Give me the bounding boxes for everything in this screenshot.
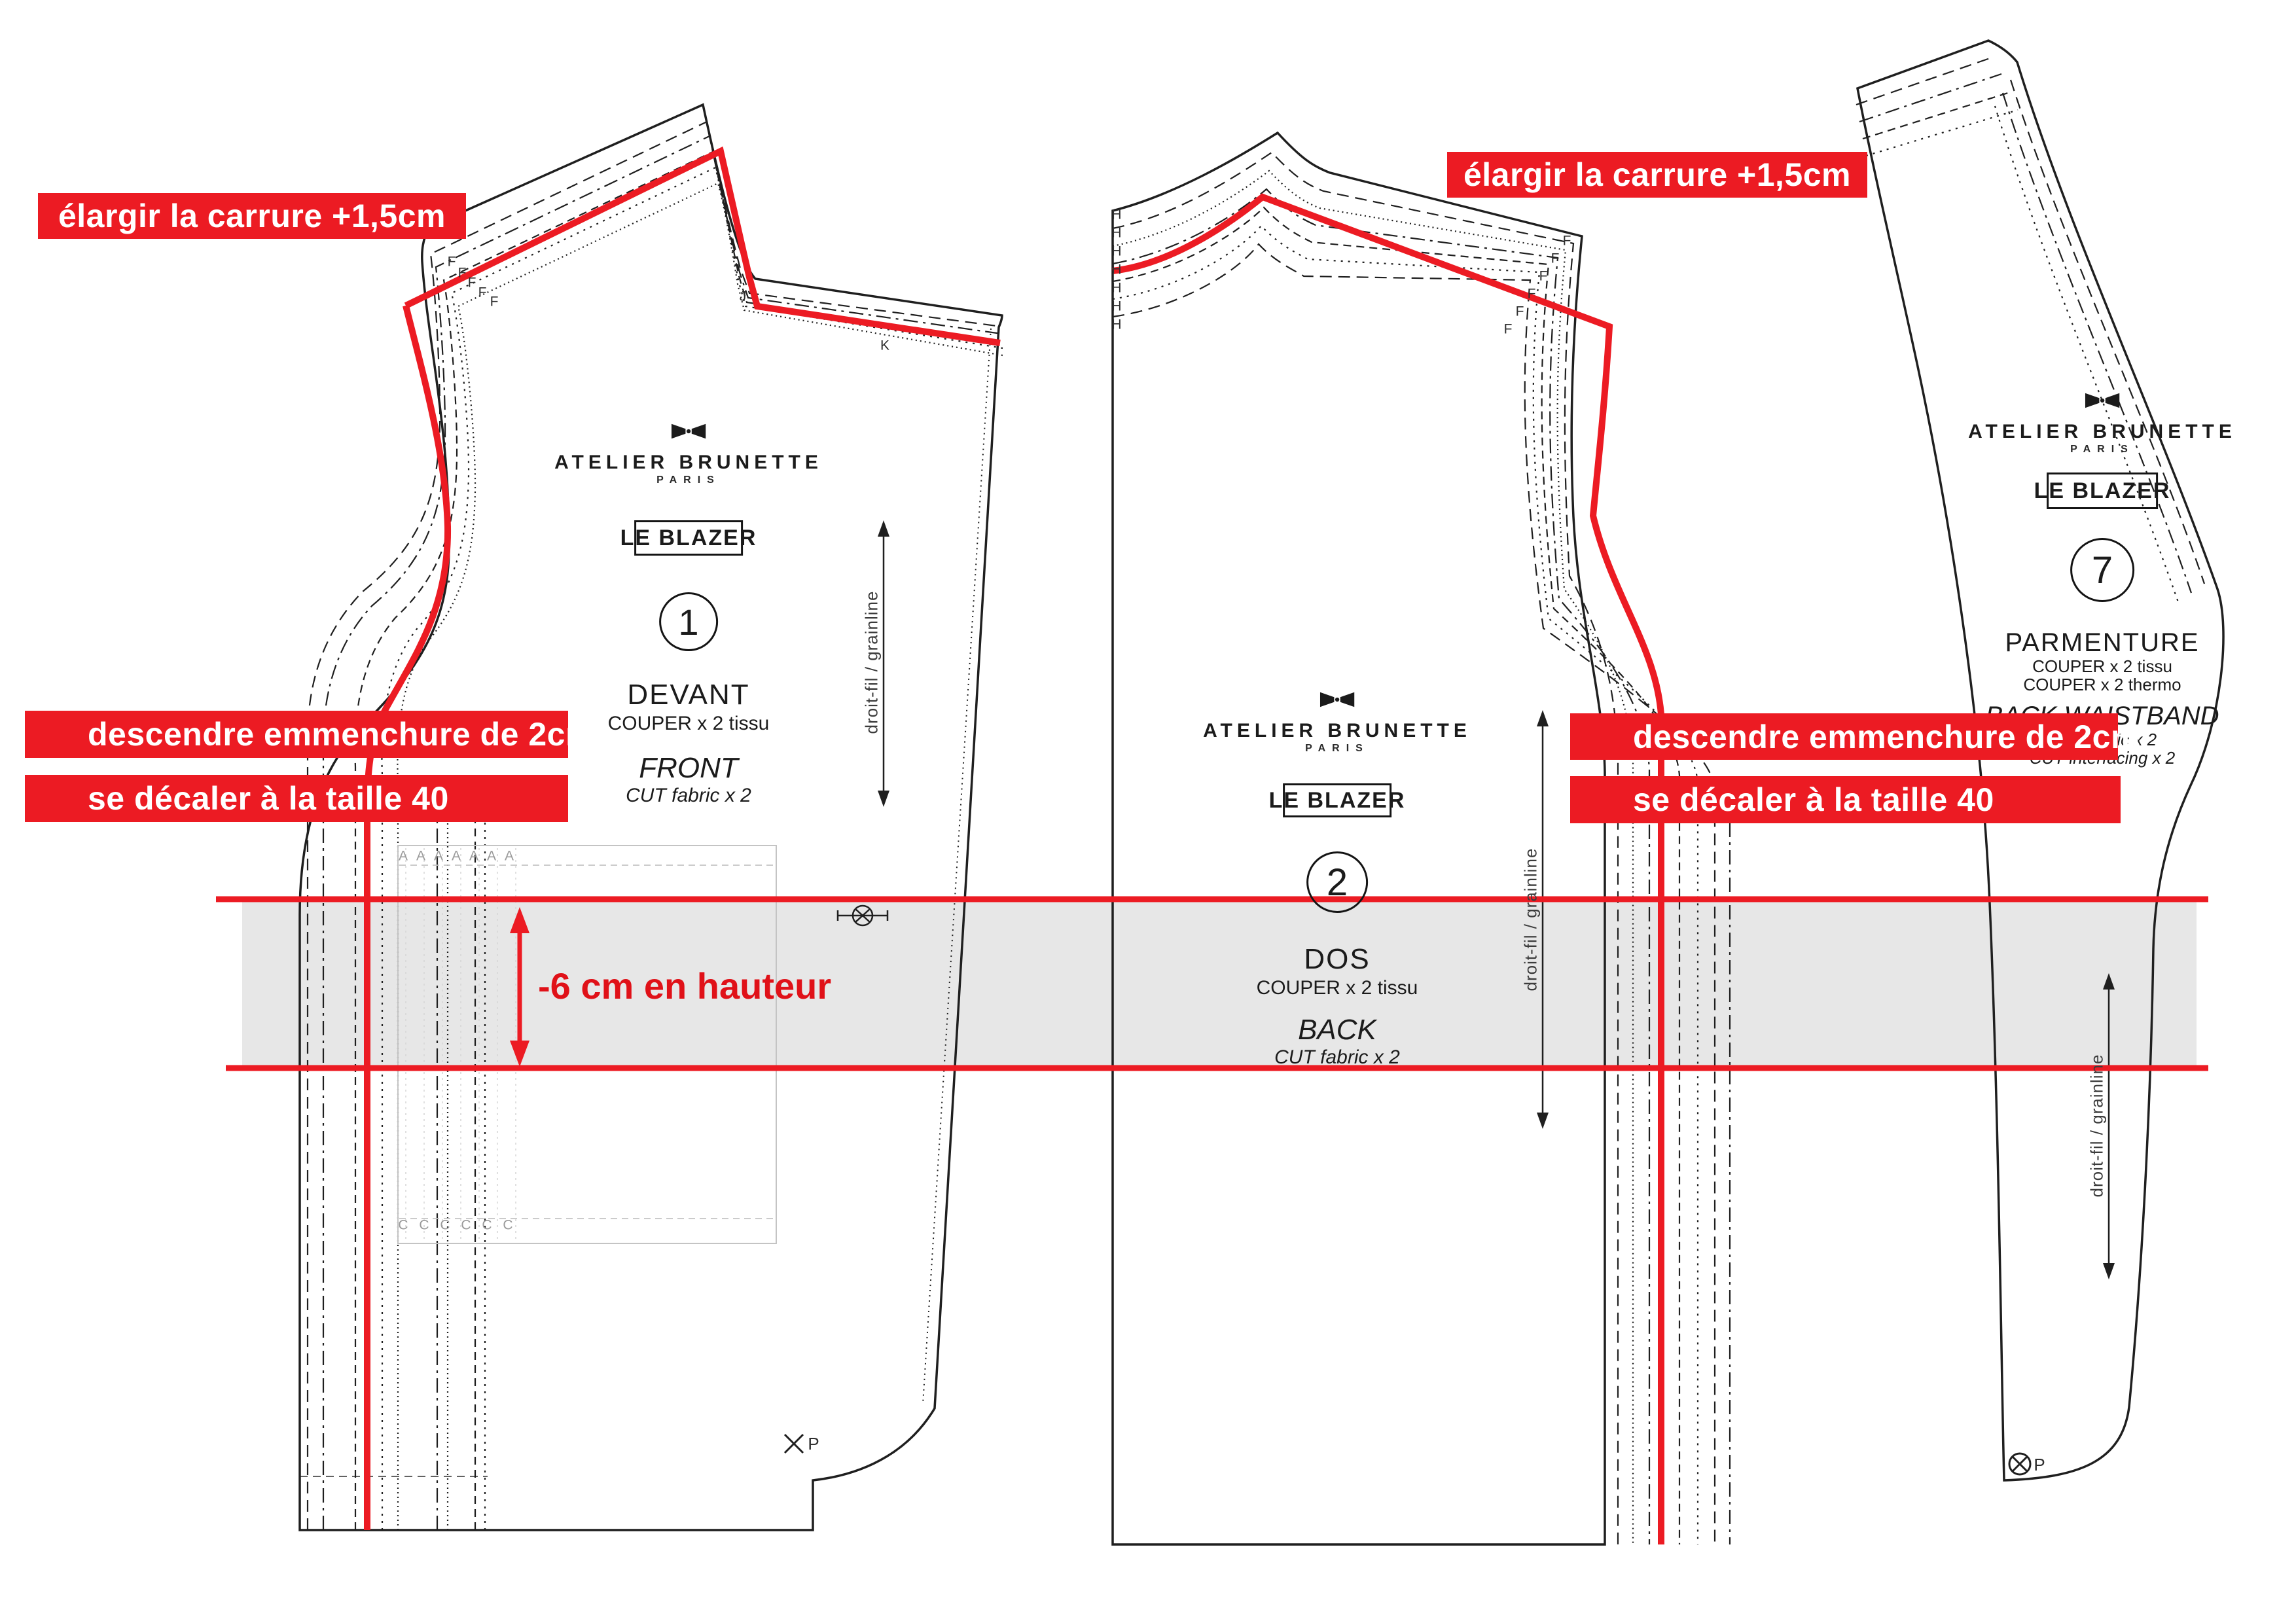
banner-shift-size-right: se décaler à la taille 40 [1570,776,2121,823]
pattern-name-box: LE BLAZER [634,520,743,556]
piece-cut-en: CUT fabric x 2 [626,785,751,807]
height-reduction-note: -6 cm en hauteur [538,965,831,1007]
pattern-name-box: LE BLAZER [2047,473,2158,509]
piece-name-fr: DEVANT [627,680,749,710]
brand-city: PARIS [2070,442,2134,457]
pattern-name-box: LE BLAZER [1283,783,1391,817]
bowtie-icon [1319,690,1355,709]
piece-cut-fr: COUPER x 2 tissu [608,713,770,735]
brand-city: PARIS [1305,741,1369,756]
banner-lower-armhole-right: descendre emmenchure de 2cm [1570,713,2118,760]
banner-widen-shoulder-left: élargir la carrure +1,5cm [38,193,466,239]
piece-name-en: BACK [1298,1015,1376,1045]
piece-cut-fr: COUPER x 2 tissu [1257,977,1418,999]
piece-cut-en: CUT fabric x 2 [1274,1046,1400,1069]
bowtie-icon [670,422,707,440]
piece-name-fr: PARMENTURE [2005,630,2199,656]
piece-back-label-block: ATELIER BRUNETTE PARIS LE BLAZER 2 DOS C… [1203,690,1471,1069]
brand-name: ATELIER BRUNETTE [1203,721,1471,741]
piece-number-badge: 2 [1306,851,1368,913]
banner-widen-shoulder-right: élargir la carrure +1,5cm [1447,152,1867,198]
piece-cut-fr: COUPER x 2 tissu [2032,657,2172,675]
piece-cut-fr-thermo: COUPER x 2 thermo [2023,675,2181,694]
piece-number-badge: 7 [2070,538,2134,602]
piece-number-badge: 1 [659,592,718,651]
piece-facing-label-block: ATELIER BRUNETTE PARIS LE BLAZER 7 PARME… [1968,391,2236,767]
brand-name: ATELIER BRUNETTE [554,452,823,473]
bowtie-icon [2084,391,2121,410]
pattern-sheet: FFFFFJKHHHHHHHFFFFFFAAAAAAACCCCCCPP ATEL… [0,0,2296,1623]
grainline-label-back: droit-fil / grainline [1521,848,1541,991]
grainline-label-facing: droit-fil / grainline [2087,1054,2108,1198]
piece-name-fr: DOS [1304,944,1370,974]
brand-city: PARIS [656,473,721,488]
brand-name: ATELIER BRUNETTE [1968,421,2236,442]
piece-name-en: FRONT [639,753,738,783]
banner-lower-armhole-left: descendre emmenchure de 2cm [25,711,568,758]
banner-shift-size-left: se décaler à la taille 40 [25,775,568,822]
grainline-label-front: droit-fil / grainline [862,591,882,734]
